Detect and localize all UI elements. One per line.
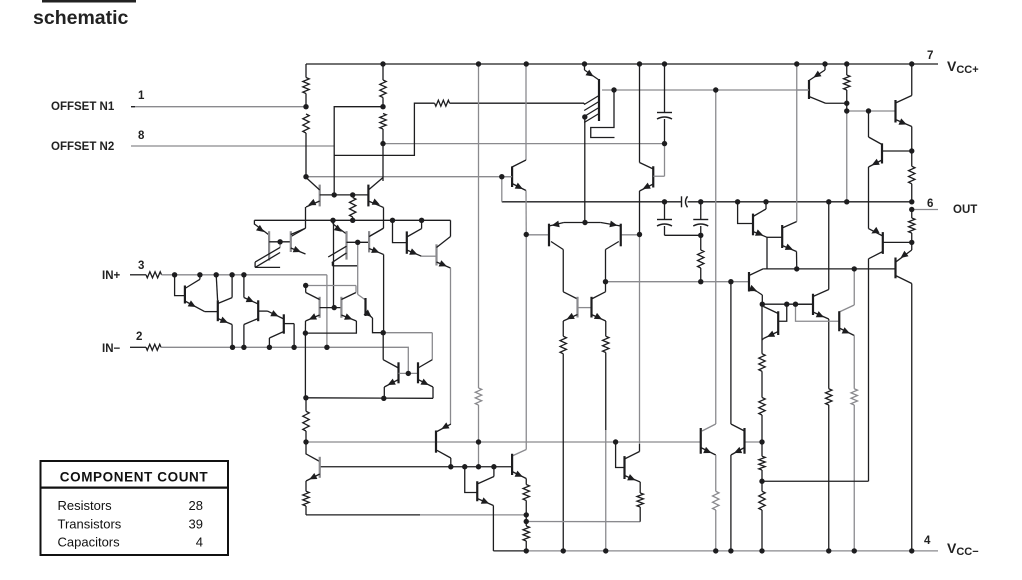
- svg-text:7: 7: [927, 50, 933, 62]
- svg-text:4: 4: [924, 535, 931, 547]
- svg-text:Capacitors: Capacitors: [58, 535, 121, 550]
- svg-text:6: 6: [927, 198, 933, 210]
- svg-text:OFFSET N2: OFFSET N2: [51, 141, 114, 153]
- svg-text:8: 8: [138, 130, 145, 142]
- svg-text:Resistors: Resistors: [58, 498, 113, 513]
- svg-text:4: 4: [196, 535, 203, 550]
- svg-text:2: 2: [136, 331, 142, 343]
- svg-text:COMPONENT COUNT: COMPONENT COUNT: [60, 470, 209, 485]
- svg-text:schematic: schematic: [33, 7, 129, 29]
- svg-text:IN+: IN+: [102, 270, 121, 282]
- svg-text:OFFSET N1: OFFSET N1: [51, 101, 115, 113]
- svg-text:3: 3: [138, 260, 144, 272]
- svg-text:Transistors: Transistors: [58, 517, 122, 532]
- svg-text:28: 28: [189, 498, 203, 513]
- svg-text:1: 1: [138, 90, 145, 102]
- svg-text:IN−: IN−: [102, 343, 121, 355]
- svg-text:39: 39: [189, 517, 203, 532]
- svg-text:OUT: OUT: [953, 204, 977, 216]
